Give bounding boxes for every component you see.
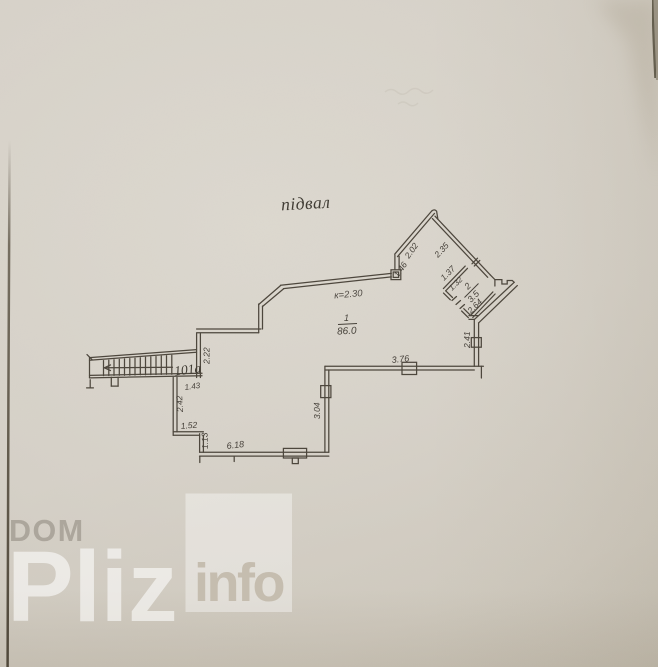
svg-text:2.41: 2.41 <box>462 331 472 349</box>
svg-text:3.76: 3.76 <box>391 353 409 365</box>
svg-text:Pliz: Pliz <box>7 531 177 643</box>
svg-text:2.42: 2.42 <box>174 395 185 413</box>
svg-text:6.18: 6.18 <box>226 439 245 451</box>
svg-text:info: info <box>194 553 283 613</box>
svg-text:3.04: 3.04 <box>312 402 322 419</box>
svg-text:2.22: 2.22 <box>202 347 212 365</box>
svg-text:1.52: 1.52 <box>180 420 198 431</box>
svg-text:1.13: 1.13 <box>199 432 210 449</box>
svg-text:підвал: підвал <box>281 192 331 215</box>
svg-text:1: 1 <box>344 313 349 323</box>
svg-text:86.0: 86.0 <box>337 326 357 338</box>
